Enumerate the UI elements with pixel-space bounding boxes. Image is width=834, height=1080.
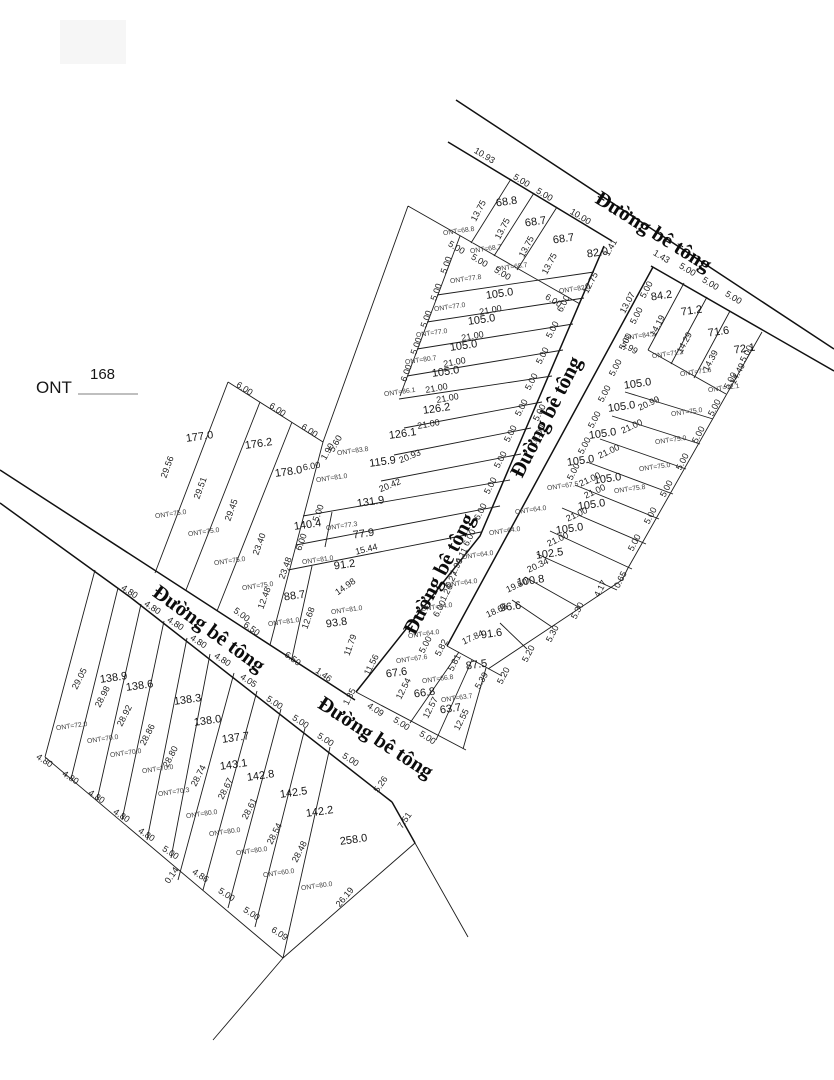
- title-prefix: ONT: [36, 378, 72, 397]
- parcel-label: 10.00: [568, 206, 592, 226]
- parcel-label: 5.30: [544, 624, 561, 644]
- parcel-label: 6.00: [472, 502, 489, 522]
- parcel-label: 5.00: [586, 410, 603, 430]
- parcel-label: ONT=81.0: [316, 473, 348, 484]
- parcel-label: 84.2: [650, 289, 673, 304]
- parcel-label: 178.0: [274, 464, 303, 480]
- parcel-label: 20.34: [525, 556, 550, 575]
- parcel-label: ONT=64.0: [515, 505, 547, 516]
- parcel-label: 68.8: [495, 195, 518, 210]
- parcel-label: 29.05: [70, 666, 89, 691]
- parcel-label: ONT=77.0: [416, 328, 448, 339]
- parcel-label: 13.75: [493, 216, 512, 241]
- parcel-label: 5.00: [706, 398, 723, 418]
- parcel-label: ONT=66.8: [422, 674, 454, 685]
- parcel-label: 68.7: [524, 215, 547, 230]
- parcel-label: ONT=77.0: [434, 302, 466, 313]
- parcel-label: 10.93: [472, 145, 496, 165]
- parcel-label: 20.42: [378, 476, 403, 494]
- parcel-label: 142.2: [305, 804, 334, 820]
- parcel-label: 88.7: [283, 589, 306, 604]
- parcel-label: 5.00: [446, 239, 466, 257]
- parcel-label: ONT=70.0: [142, 764, 174, 775]
- map-title: ONT 168: [36, 366, 138, 397]
- parcel-label: 28.67: [216, 776, 235, 801]
- parcel-label: 5.00: [626, 533, 643, 553]
- parcel-label: 4.17: [592, 579, 609, 599]
- parcel-label: 12.54: [394, 676, 413, 701]
- parcel-label: 5.00: [642, 506, 659, 526]
- parcel-label: 5.00: [418, 309, 433, 329]
- parcel-label: ONT=60.0: [263, 868, 295, 879]
- parcel-label: 13.75: [517, 234, 536, 259]
- parcel-label: 105.0: [607, 399, 636, 415]
- cadastral-map-page: ONT 168 Đường bê tôngĐường bê tôngĐường …: [0, 0, 834, 1080]
- parcel-label: 5.81: [446, 653, 463, 673]
- parcel-label: 21.00: [545, 530, 570, 549]
- parcel-label: 5.82: [433, 638, 450, 658]
- parcel-label: 28.98: [93, 684, 112, 709]
- parcel-label: 143.1: [219, 757, 248, 773]
- parcel-label: 5.00: [408, 336, 423, 356]
- parcel-label: 6.00: [300, 422, 320, 440]
- parcel-label: 6.00: [398, 363, 413, 383]
- parcel-label: 105.0: [623, 376, 652, 392]
- parcel-label: 5.00: [469, 252, 489, 270]
- parcel-label: ONT=75.0: [188, 527, 220, 538]
- parcel-label: ONT=86.1: [384, 387, 416, 398]
- parcel-label: ONT=80.0: [209, 827, 241, 838]
- road-name-label: Đường bê tông: [591, 186, 717, 277]
- parcel-label: 13.75: [540, 251, 559, 276]
- parcel-label: 5.00: [392, 715, 412, 733]
- parcel-label: 13.75: [469, 198, 488, 223]
- parcel-label: 5.00: [291, 713, 311, 731]
- parcel-label: ONT=80.0: [186, 809, 218, 820]
- parcel-label: 131.9: [356, 494, 385, 510]
- parcel-label: 14.98: [333, 576, 357, 597]
- parcel-label: 5.00: [438, 255, 453, 275]
- cadastral-map: ONT 168 Đường bê tôngĐường bê tôngĐường …: [0, 0, 834, 1080]
- parcel-label: 4.80: [120, 583, 140, 601]
- parcel-label: 6.00: [235, 380, 255, 398]
- parcel-label: 87.5: [465, 658, 488, 673]
- parcel-label: 5.00: [534, 346, 551, 366]
- parcel-label: ONT=75.0: [214, 556, 246, 567]
- parcel-label: 28.74: [189, 763, 208, 788]
- parcel-label: 28.61: [240, 796, 259, 821]
- parcel-label: 126.1: [388, 426, 417, 442]
- parcel-label: 28.86: [138, 722, 157, 747]
- parcel-label: 105.0: [566, 453, 595, 469]
- parcel-label: ONT=77.8: [450, 274, 482, 285]
- parcel-label: 4.09: [366, 701, 386, 719]
- parcel-label: 0.65: [612, 570, 629, 590]
- parcel-label: 18.66: [484, 601, 509, 620]
- parcel-label: 5.20: [495, 666, 512, 686]
- parcel-label: 29.45: [223, 498, 240, 523]
- parcel-label: ONT=70.3: [158, 787, 190, 798]
- parcel-label: 1.46: [314, 665, 334, 683]
- parcel-label: 5.00: [523, 372, 540, 392]
- parcel-label: ONT=81.0: [331, 605, 363, 616]
- parcel-label: 4.80: [61, 769, 81, 787]
- parcel-label: 5.00: [265, 694, 285, 712]
- parcel-label: 23.40: [251, 532, 268, 557]
- scan-artifact: [60, 20, 126, 64]
- parcel-label: 68.7: [552, 232, 575, 247]
- parcel-label: ONT=70.0: [87, 734, 119, 745]
- parcel-label: 137.7: [221, 730, 250, 746]
- parcel-labels: 10.935.005.0010.001.4168.868.768.782.013…: [35, 145, 756, 942]
- parcel-label: 11.79: [342, 633, 359, 657]
- parcel-label: ONT=80.0: [236, 846, 268, 857]
- parcel-label: 105.0: [449, 338, 478, 354]
- parcel-label: 23.48: [277, 556, 294, 581]
- title-number: 168: [90, 366, 115, 383]
- parcel-label: 5.00: [482, 476, 499, 496]
- parcel-label: 5.00: [316, 731, 336, 749]
- parcel-label: 142.5: [279, 785, 308, 801]
- parcel-label: 5.00: [658, 479, 675, 499]
- parcel-label: 5.00: [513, 398, 530, 418]
- parcel-label: 5.00: [502, 424, 519, 444]
- parcel-label: 5.00: [723, 289, 743, 307]
- parcel-label: ONT=75.0: [671, 407, 703, 418]
- parcel-label: 29.51: [192, 476, 209, 501]
- parcel-label: 5.00: [161, 844, 181, 862]
- parcel-label: 115.9: [369, 454, 397, 470]
- parcel-label: 177.0: [185, 429, 214, 445]
- parcel-label: ONT=75.8: [614, 484, 646, 495]
- parcel-label: 71.2: [680, 304, 703, 319]
- parcel-label: 6.00: [293, 532, 308, 552]
- parcel-label: 6.00: [302, 460, 321, 473]
- parcel-label: 91.2: [333, 558, 356, 573]
- parcel-label: 5.00: [242, 905, 262, 923]
- parcel-label: 28.48: [290, 839, 309, 864]
- parcel-label: ONT=81.0: [268, 617, 300, 628]
- parcel-label: 4.80: [87, 788, 107, 806]
- parcel-label: 138.6: [125, 678, 154, 694]
- parcel-label: 77.9: [352, 527, 375, 542]
- parcel-label: 4.80: [137, 826, 157, 844]
- parcel-label: ONT=64.0: [489, 526, 521, 537]
- parcel-label: 28.54: [265, 821, 284, 846]
- parcel-label: 93.8: [325, 616, 348, 631]
- parcel-label: 4.86: [191, 867, 211, 885]
- parcel-label: 105.0: [467, 312, 496, 328]
- parcel-label: 105.0: [431, 364, 460, 380]
- parcel-label: 176.2: [244, 436, 273, 452]
- parcel-label: 20.93: [398, 447, 423, 465]
- parcel-label: 21.00: [417, 417, 441, 431]
- parcel-label: 5.00: [428, 282, 443, 302]
- parcel-label: ONT=75.0: [639, 462, 671, 473]
- parcel-label: 71.6: [707, 325, 730, 340]
- parcel-label: 21.00: [564, 505, 589, 524]
- parcel-label: ONT=71.2: [652, 349, 684, 360]
- parcel-label: 21.00: [596, 442, 621, 461]
- parcel-label: 5.00: [700, 275, 720, 293]
- parcel-label: 4.80: [35, 752, 55, 770]
- parcel-label: 5.00: [310, 503, 325, 523]
- parcel-label: 5.39: [473, 670, 490, 690]
- parcel-label: 5.00: [418, 729, 438, 747]
- parcel-label: 138.9: [99, 670, 128, 686]
- parcel-label: 1.35: [341, 687, 358, 707]
- parcel-label: 19.50: [504, 576, 529, 595]
- parcel-label: 5.00: [607, 358, 624, 378]
- parcel-label: 29.56: [159, 455, 176, 480]
- parcel-label: 5.00: [341, 751, 361, 769]
- parcel-label: 82.0: [586, 246, 609, 261]
- parcel-label: 0.14: [162, 865, 180, 885]
- parcel-label: 5.26: [371, 774, 389, 794]
- parcel-label: ONT=83.8: [337, 446, 369, 457]
- parcel-label: 258.0: [339, 832, 368, 848]
- parcel-label: 142.8: [246, 768, 275, 784]
- parcel-label: 5.00: [596, 384, 613, 404]
- parcel-label: 17.84: [460, 628, 485, 647]
- parcel-label: ONT=71.6: [680, 367, 712, 378]
- parcel-label: ONT=67.5: [547, 481, 579, 492]
- parcel-label: ONT=70.0: [110, 748, 142, 759]
- parcel-label: ONT=75.0: [655, 435, 687, 446]
- parcel-label: ONT=80.0: [301, 881, 333, 892]
- parcel-label: 138.3: [173, 692, 202, 708]
- parcel-label: ONT=80.7: [405, 355, 437, 366]
- parcel-label: 105.0: [588, 426, 617, 442]
- parcel-label: ONT=67.6: [396, 654, 428, 665]
- parcel-label: 5.00: [544, 320, 561, 340]
- parcel-label: 138.0: [193, 713, 222, 729]
- parcel-label: 105.0: [485, 286, 514, 302]
- parcel-label: ONT=75.0: [155, 509, 187, 520]
- parcel-label: 6.00: [268, 401, 288, 419]
